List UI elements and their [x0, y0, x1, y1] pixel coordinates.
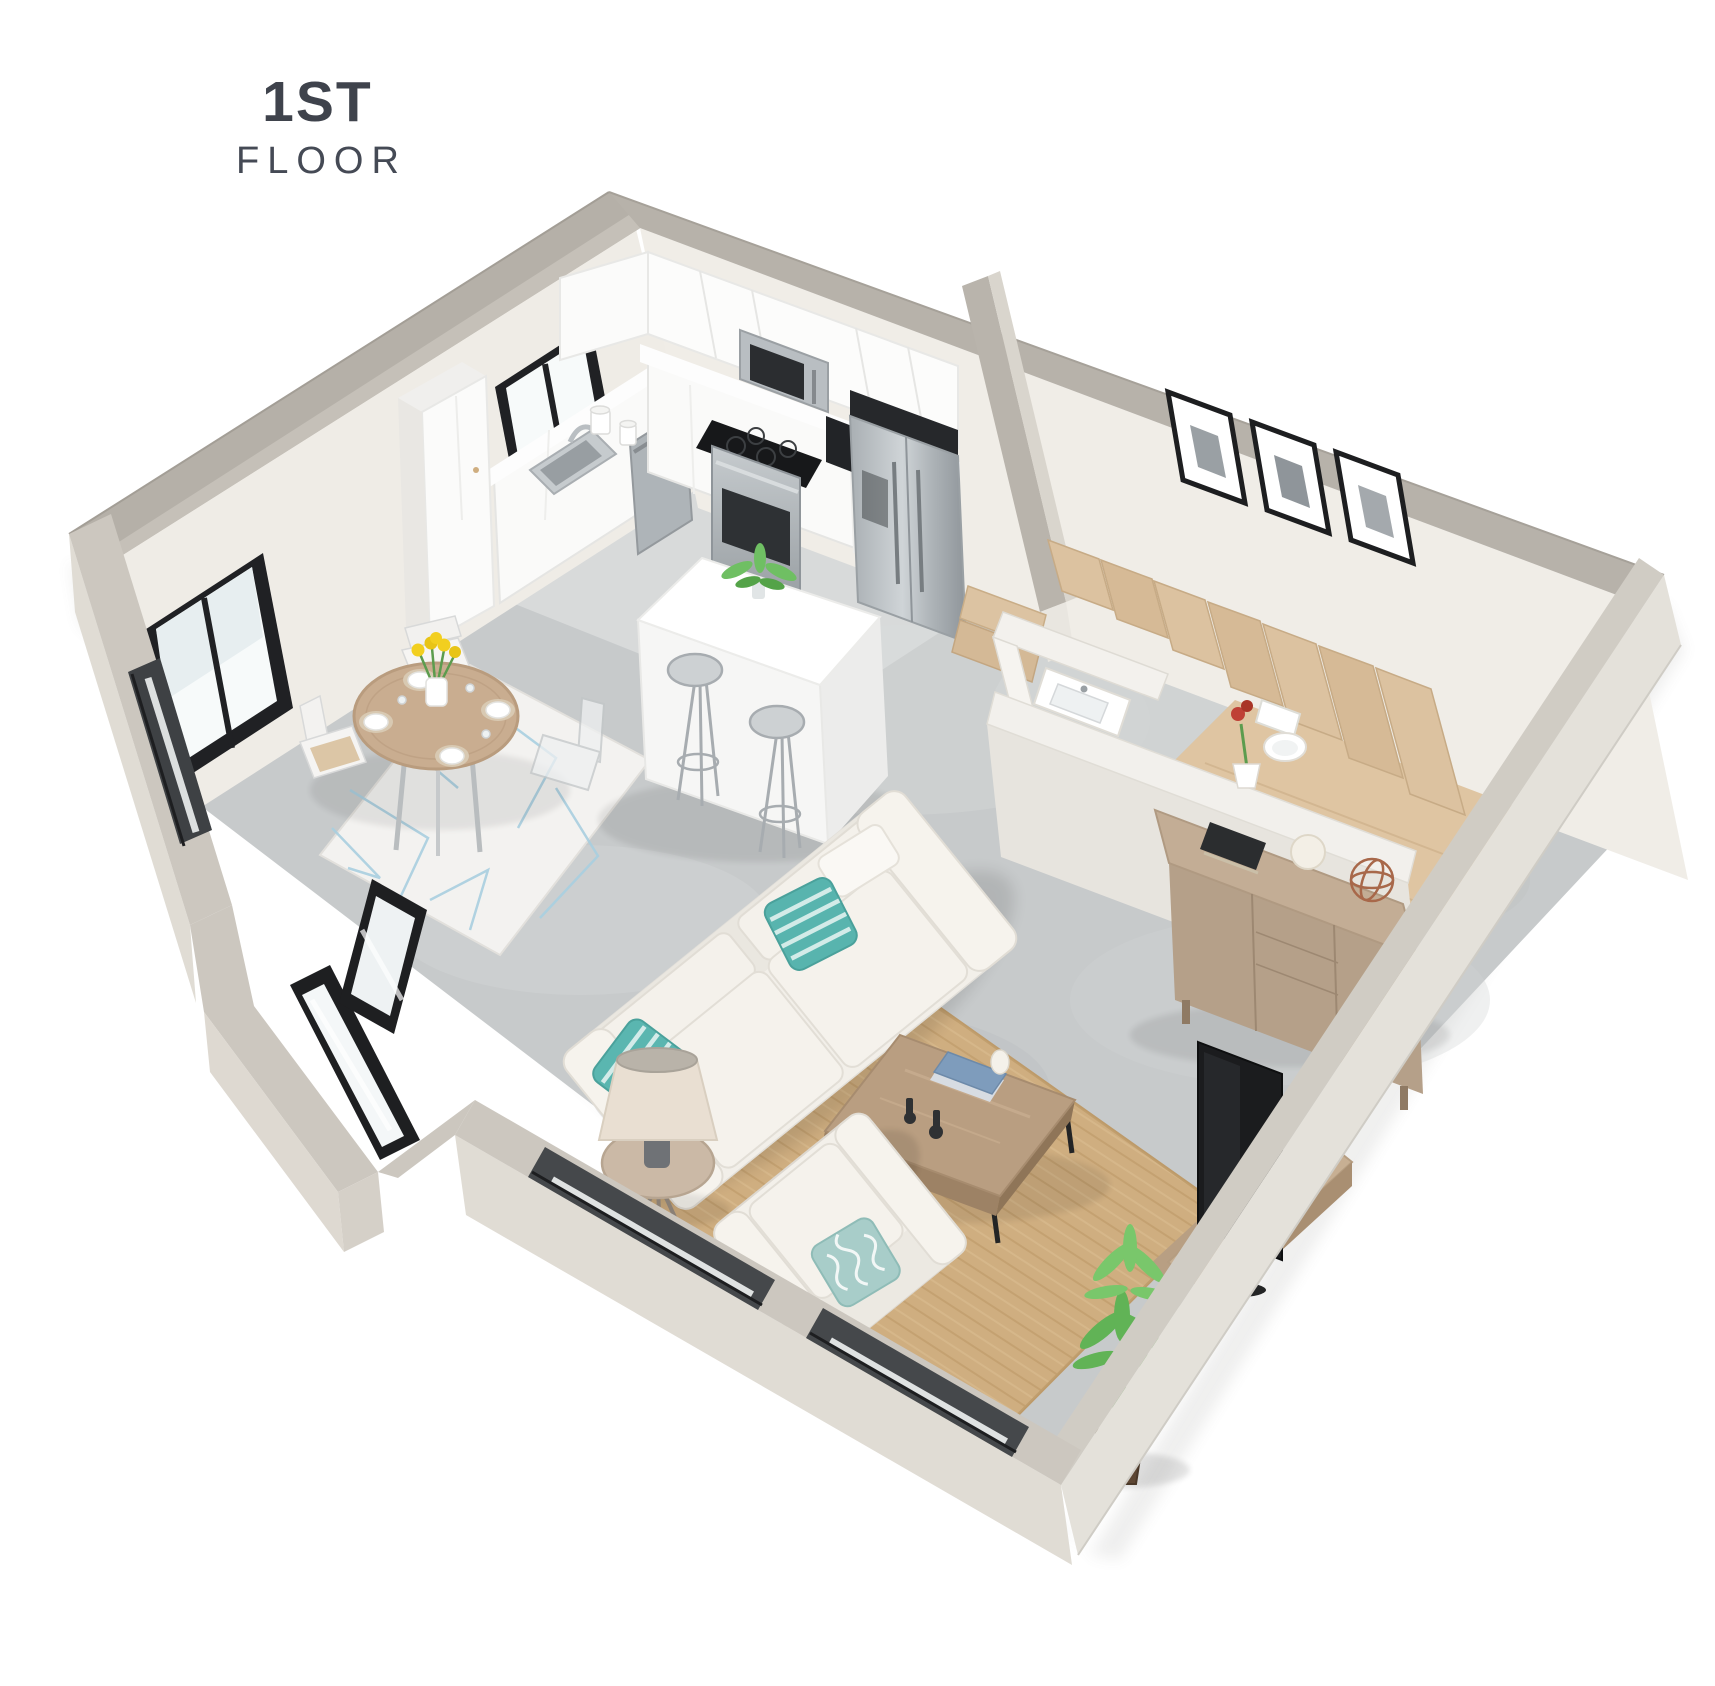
floor-title: 1ST FLOOR: [228, 74, 407, 183]
dresser-leg: [1182, 1000, 1190, 1024]
floor-plan-page: 1ST FLOOR: [0, 0, 1715, 1686]
yarn-ball: [1291, 835, 1325, 869]
refrigerator: [850, 390, 966, 642]
dresser-leg: [1400, 1086, 1408, 1110]
entry-vestibule: [190, 879, 427, 1252]
vase: [991, 1050, 1009, 1074]
pantry-cabinet: [398, 362, 494, 642]
vase: [426, 678, 447, 706]
cabinet-handle: [473, 467, 479, 473]
floor-number: 1ST: [228, 74, 407, 131]
floor-plan-rendering: [0, 0, 1715, 1686]
floor-label: FLOOR: [228, 140, 407, 183]
